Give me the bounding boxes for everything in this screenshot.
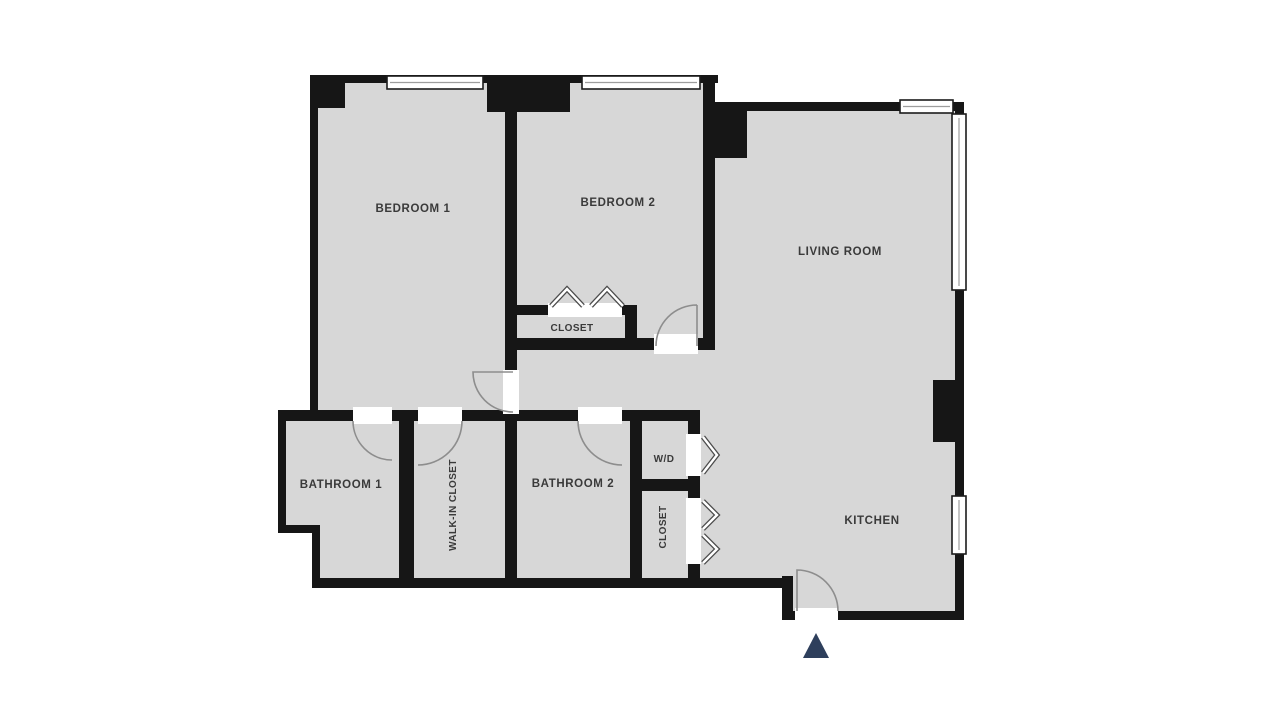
wall-walkin-bathroom2-divider [505, 421, 517, 588]
window-bedroom2 [582, 76, 700, 89]
room-label-closet-hall: CLOSET [658, 506, 669, 549]
wall-left-bedroom1 [310, 75, 318, 415]
wall-closet-bedroom2-right [625, 305, 637, 350]
floorplan-page: BEDROOM 1 BEDROOM 2 LIVING ROOM CLOSET B… [0, 0, 1280, 720]
wall-bathroom2-wd-divider [630, 421, 642, 588]
door-opening-walkin [418, 407, 462, 424]
room-label-bedroom2: BEDROOM 2 [580, 197, 655, 209]
floorplan-canvas: BEDROOM 1 BEDROOM 2 LIVING ROOM CLOSET B… [0, 0, 1280, 720]
entrance-arrow-icon [803, 633, 829, 658]
door-opening-wd-bifold [686, 434, 701, 476]
wall-left-bathroom1 [278, 410, 286, 533]
wall-bottom-bathrooms [312, 578, 793, 588]
room-label-bedroom1: BEDROOM 1 [375, 203, 450, 215]
door-opening-bathroom2 [578, 407, 622, 424]
wall-column-bedroom1-corner [310, 75, 345, 108]
wall-bathroom-row-top [278, 410, 700, 421]
window-living-right [952, 114, 966, 290]
window-kitchen-right [952, 496, 966, 554]
door-opening-bedroom1 [503, 370, 519, 414]
window-living-top [900, 100, 953, 113]
door-opening-closet-hall-bifold [686, 498, 701, 564]
wall-bedroom1-right [505, 75, 517, 418]
wall-column-living-corner [703, 103, 747, 158]
room-label-walk-in-closet: WALK-IN CLOSET [448, 459, 459, 551]
wall-column-between-bedrooms [487, 75, 570, 112]
door-opening-closet-bedroom2 [548, 303, 622, 317]
room-label-wd: W/D [654, 454, 675, 465]
door-opening-entrance [795, 608, 838, 623]
wall-bathroom1-walkin-divider [399, 421, 414, 588]
wall-wd-right-top [688, 410, 700, 434]
window-bedroom1 [387, 76, 483, 89]
door-opening-bedroom2 [654, 334, 698, 354]
door-opening-bathroom1 [353, 407, 392, 424]
wall-closet-right-bottom [688, 564, 700, 588]
room-label-living-room: LIVING ROOM [798, 246, 882, 258]
wall-wd-right-mid [688, 476, 700, 498]
room-label-bathroom1: BATHROOM 1 [300, 479, 382, 491]
room-label-closet-bedroom2: CLOSET [551, 323, 594, 334]
wall-left-lower [312, 528, 320, 583]
room-label-bathroom2: BATHROOM 2 [532, 478, 614, 490]
wall-column-kitchen-chase [933, 380, 962, 442]
room-label-kitchen: KITCHEN [844, 515, 899, 527]
